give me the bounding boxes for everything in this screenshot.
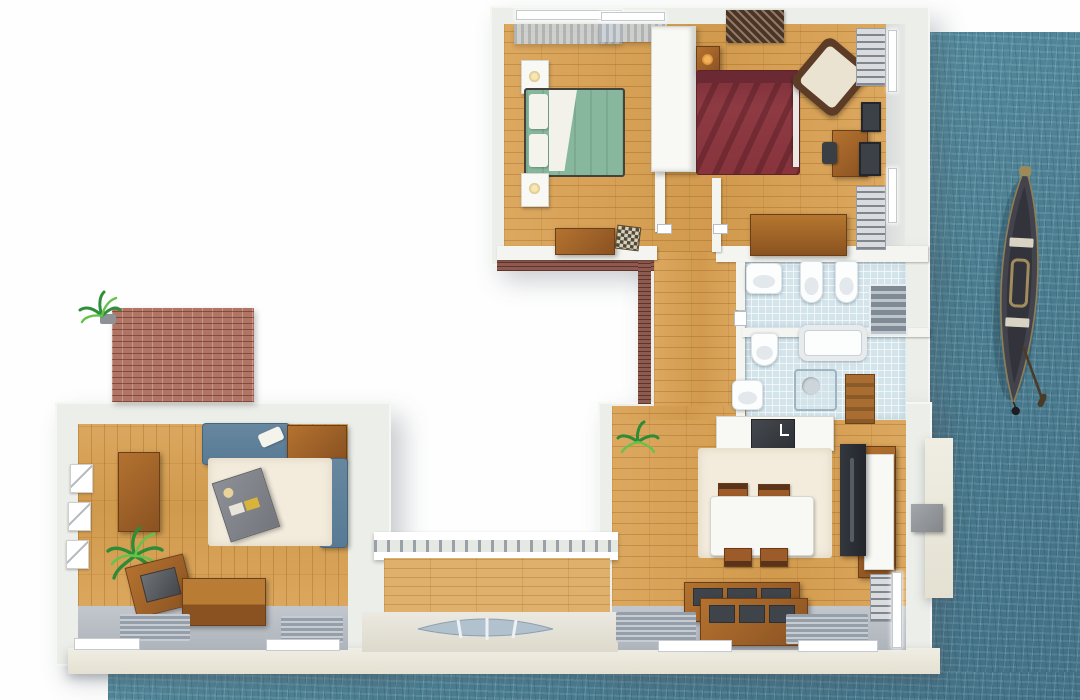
storage-chest [182, 578, 266, 626]
brick-privacy-wall [112, 308, 254, 402]
hall-bath-wall-a [736, 262, 745, 310]
sea-water-bottom [108, 672, 1080, 700]
double-bed-red [696, 70, 800, 175]
door-threshold-bath1 [734, 311, 747, 326]
dining-chair [724, 548, 752, 567]
checkered-stool [615, 225, 642, 252]
desk-chair [822, 142, 837, 164]
dining-table [710, 496, 814, 556]
toilet [800, 261, 823, 303]
dining-chair [760, 548, 788, 567]
nightstand [521, 173, 549, 207]
framed-sketch [66, 540, 89, 569]
cooktop [751, 419, 795, 449]
bedroom2 [690, 6, 930, 266]
kitchen-counter [716, 416, 834, 451]
facade-vent [413, 616, 558, 642]
bathtub [799, 325, 867, 361]
corner-table [287, 425, 347, 460]
media-cabinet-panel [840, 444, 866, 556]
window-sill [658, 640, 732, 652]
brick-trim-vertical [638, 258, 651, 404]
patterned-rug [726, 10, 784, 43]
wall-window [888, 30, 897, 92]
hallway-floor [654, 252, 738, 414]
desk [555, 228, 615, 255]
doormat [120, 614, 190, 641]
shower-stall [869, 284, 908, 336]
dresser [750, 214, 847, 256]
gondola-boat [979, 162, 1058, 417]
wall-shelves [856, 28, 886, 86]
framed-sketch [70, 464, 93, 493]
tall-sideboard [118, 452, 160, 532]
houseplant [616, 420, 660, 460]
wall-shelves [856, 186, 886, 250]
double-bed-green [524, 88, 625, 177]
doormat [616, 612, 696, 642]
balcony-railing [374, 532, 618, 560]
window-sill [74, 638, 140, 650]
wall-radiator [870, 574, 892, 622]
wall-window [888, 168, 897, 223]
window-sill [266, 639, 340, 651]
framed-sketch [68, 502, 91, 531]
bedroom1 [490, 6, 720, 266]
bidet [751, 333, 778, 366]
terrace-potted-plant [74, 288, 122, 338]
living-room [55, 402, 391, 666]
media-cabinet-top [864, 454, 894, 570]
kitchen-dining [598, 402, 932, 666]
floor-plan-scene [0, 0, 1080, 700]
wall-window [892, 572, 902, 648]
window-sill [798, 640, 878, 652]
framed-picture [861, 102, 881, 132]
balcony-deck [384, 558, 610, 614]
window [601, 12, 665, 21]
washbasin [746, 263, 782, 294]
framed-picture [859, 142, 881, 176]
bidet [835, 261, 858, 303]
